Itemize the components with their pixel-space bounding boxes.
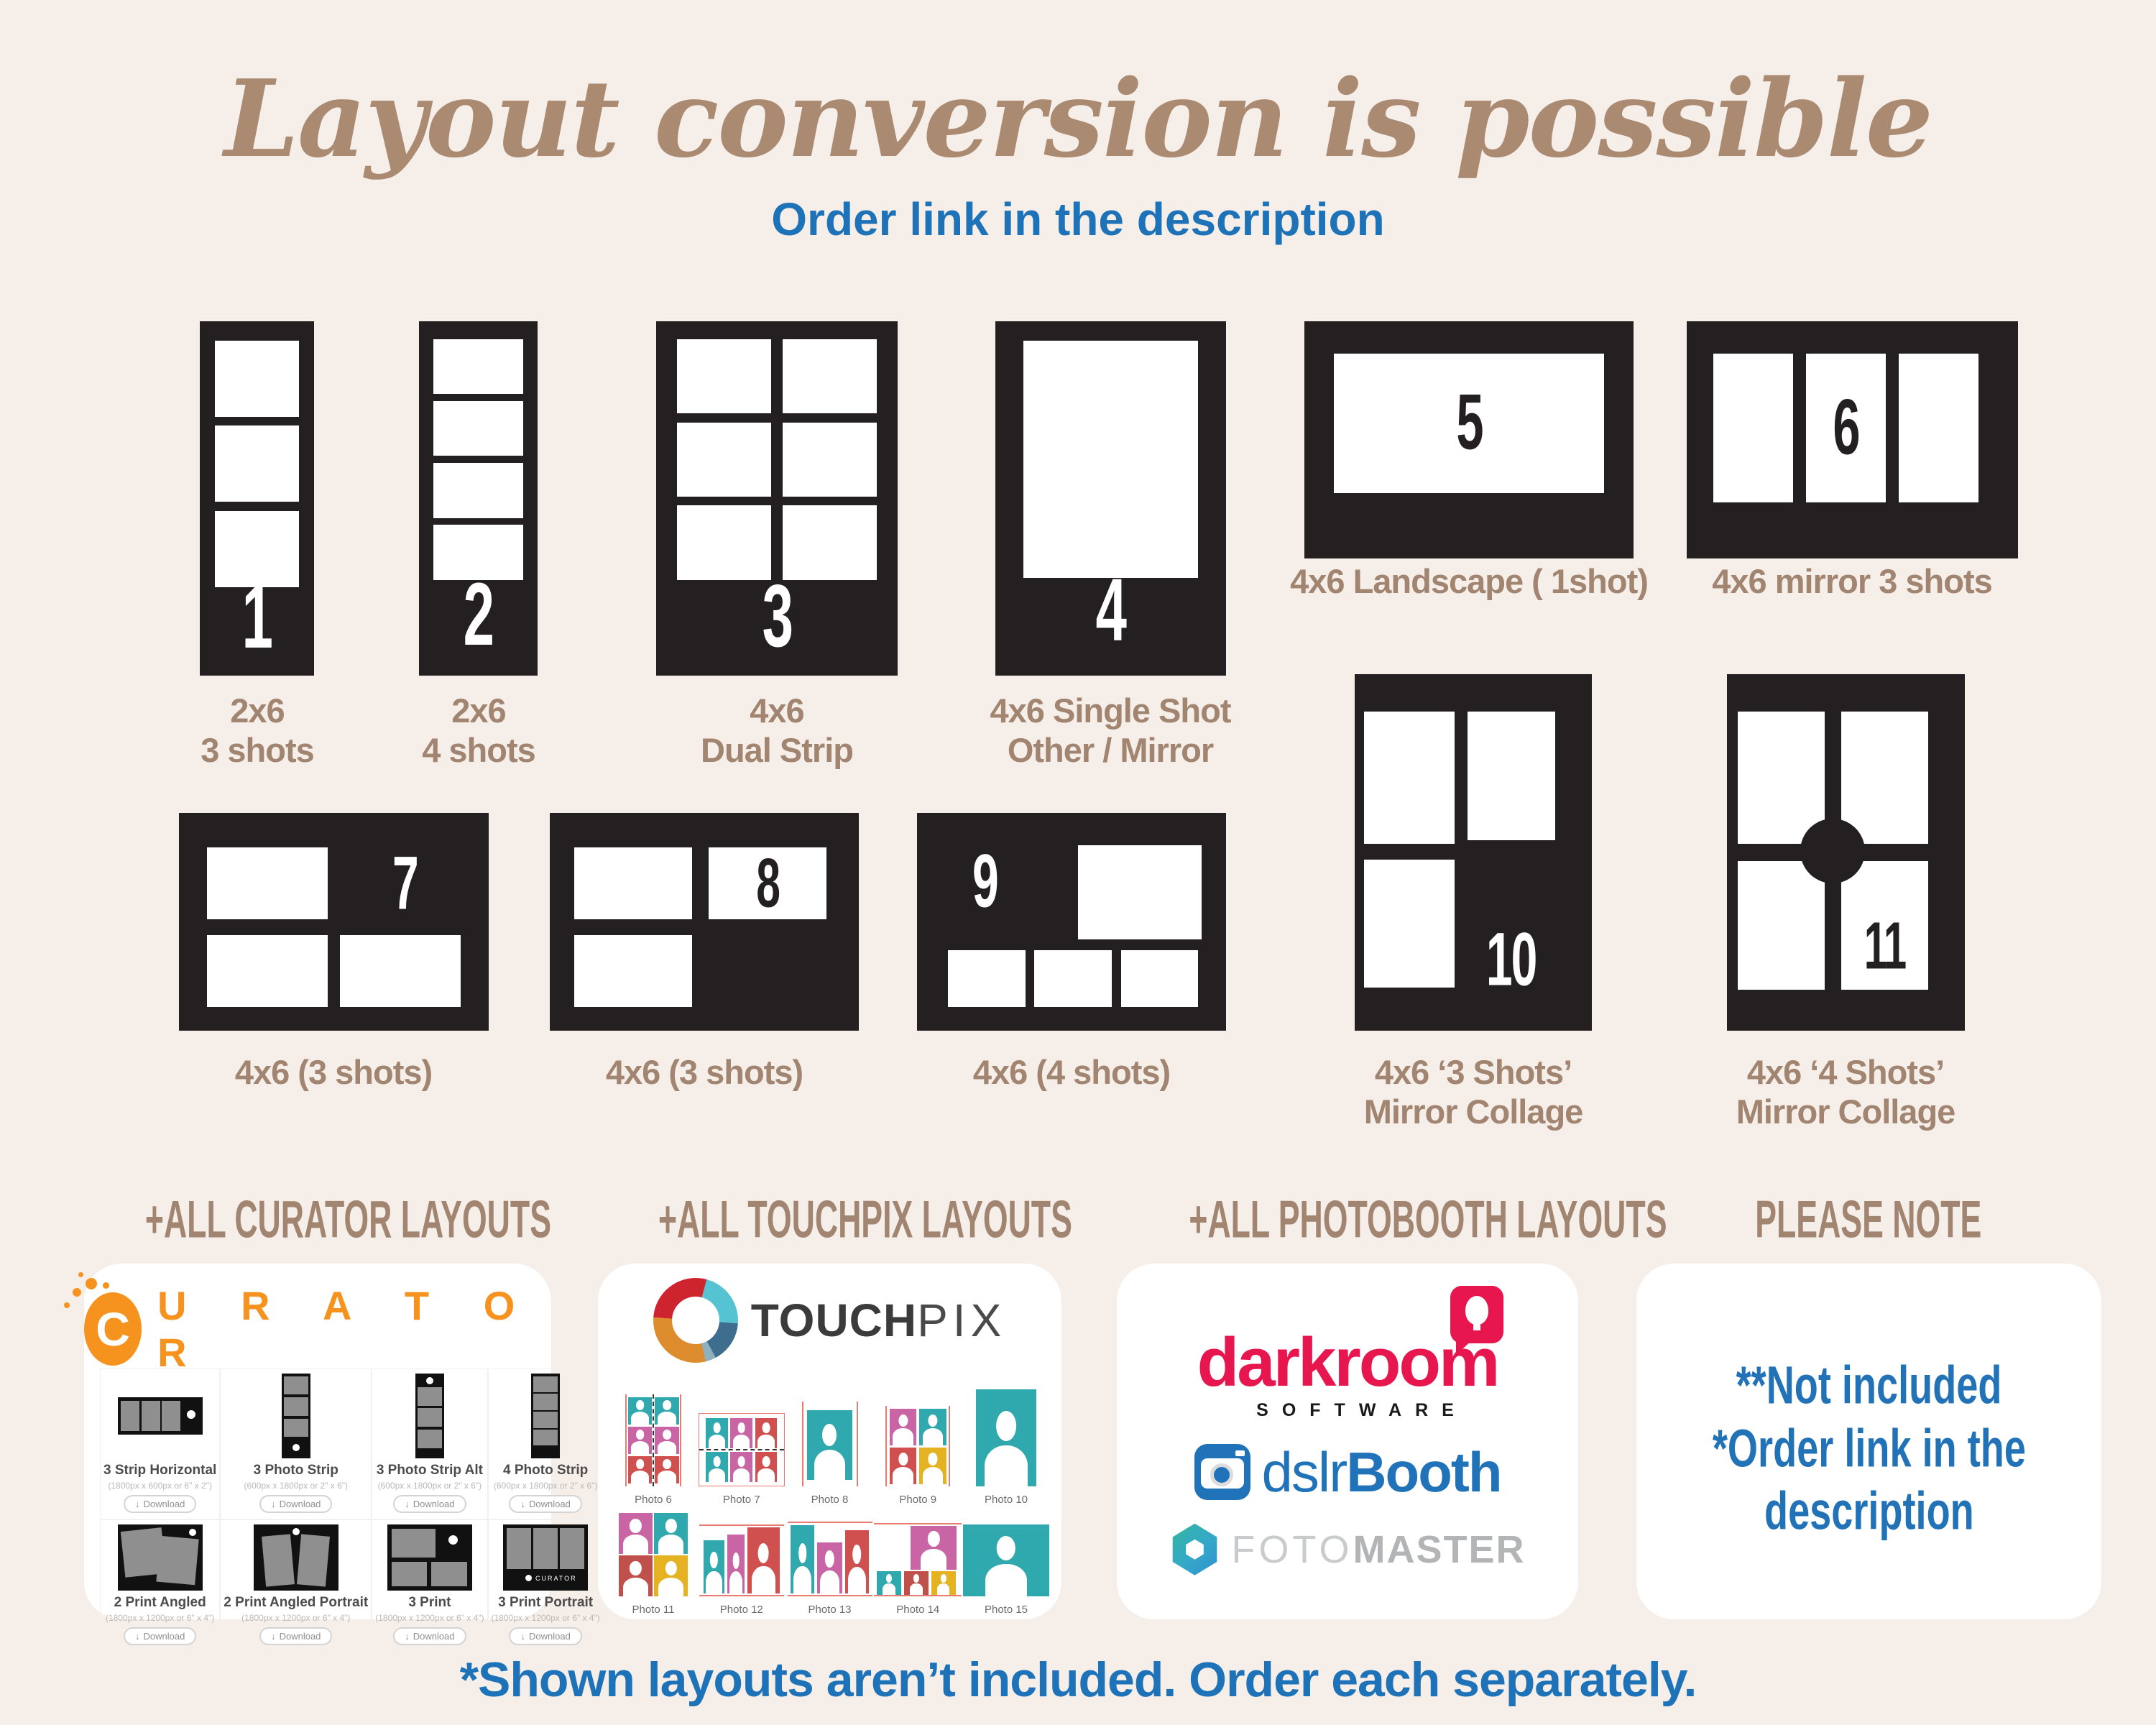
touchpix-item: Photo 11 <box>611 1512 696 1616</box>
touchpix-thumb <box>976 1389 1036 1486</box>
layout-number: 10 <box>1486 922 1536 998</box>
layout-number: 4 <box>1096 566 1125 655</box>
layout-number: 3 <box>762 571 791 661</box>
download-icon: ↓ <box>520 1499 525 1509</box>
touchpix-item: Photo 12 <box>699 1512 784 1616</box>
curator-item: 3 Print (1800px x 1200px or 6" x 4") ↓Do… <box>372 1519 487 1652</box>
curator-item: 4 Photo Strip (600px x 1800px or 2" x 6"… <box>488 1368 604 1519</box>
layout-card-11: 11 <box>1727 674 1965 1031</box>
layout-card-1: 1 <box>200 321 314 676</box>
photo-slot <box>574 935 691 1007</box>
fotomaster-logo: FOTOMASTER <box>1169 1524 1525 1575</box>
photo-slot <box>215 341 300 417</box>
touchpix-item: Photo 7 <box>699 1384 784 1506</box>
layout-label-7: 4x6 (3 shots) <box>154 1053 513 1092</box>
download-button[interactable]: ↓Download <box>509 1495 581 1513</box>
touchpix-item: Photo 9 <box>875 1384 960 1506</box>
poster: Layout conversion is possible Order link… <box>0 0 2156 1725</box>
download-button[interactable]: ↓Download <box>393 1627 466 1645</box>
layout-number: 9 <box>972 844 998 919</box>
touchpix-item: Photo 13 <box>788 1512 872 1616</box>
layout-label-4: 4x6 Single ShotOther / Mirror <box>931 691 1290 770</box>
layout-label-6: 4x6 mirror 3 shots <box>1636 562 2068 602</box>
layout-card-5: 5 <box>1304 321 1634 558</box>
touchpix-ring-icon <box>653 1278 738 1363</box>
photo-slot <box>433 339 523 394</box>
photo-slot: 8 <box>709 847 826 919</box>
layout-card-6: 6 <box>1687 321 2018 558</box>
touchpix-thumb <box>963 1524 1049 1596</box>
curator-thumb <box>387 1524 472 1591</box>
photo-slot: 6 <box>1806 354 1886 503</box>
curator-thumb: CURATOR <box>503 1524 588 1591</box>
layout-label-5: 4x6 Landscape ( 1shot) <box>1253 562 1685 602</box>
camera-icon <box>1194 1444 1250 1500</box>
layout-card-8: 8 <box>550 813 859 1031</box>
download-icon: ↓ <box>135 1631 140 1642</box>
photo-slot <box>340 935 461 1007</box>
download-button[interactable]: ↓Download <box>259 1627 332 1645</box>
touchpix-thumb <box>788 1522 872 1596</box>
touchpix-thumb <box>625 1394 681 1486</box>
photo-slot <box>1738 712 1825 844</box>
photo-slot <box>207 847 328 919</box>
download-button[interactable]: ↓Download <box>259 1495 332 1513</box>
download-button[interactable]: ↓Download <box>393 1495 466 1513</box>
touchpix-thumb <box>885 1406 950 1486</box>
photo-slot <box>1841 712 1928 844</box>
curator-item: CURATOR 3 Print Portrait (1800px x 1200p… <box>488 1519 604 1652</box>
touchpix-item: Photo 10 <box>964 1384 1049 1506</box>
photo-slot <box>574 847 691 919</box>
layout-card-4: 4 <box>995 321 1226 676</box>
curator-thumb <box>118 1397 203 1435</box>
photobooth-panel: darkroom SOFTWARE dslrBooth FOTOMASTER <box>1117 1264 1578 1619</box>
touchpix-thumb <box>802 1402 858 1486</box>
aperture-icon <box>1169 1524 1220 1575</box>
darkroom-bubble-icon <box>1450 1286 1503 1343</box>
photo-slot <box>207 935 328 1007</box>
touchpix-thumb <box>699 1413 785 1486</box>
photo-slot <box>1364 860 1454 988</box>
curator-item: 3 Photo Strip Alt (600px x 1800px or 2" … <box>372 1368 487 1519</box>
photo-slot <box>1023 341 1199 578</box>
curator-thumb <box>531 1374 560 1458</box>
photo-slot <box>1034 950 1112 1007</box>
heading-photobooth: +ALL PHOTOBOOTH LAYOUTS <box>1096 1195 1599 1246</box>
photo-slot <box>783 423 877 497</box>
touchpix-thumb <box>619 1513 688 1596</box>
note-text: **Not included *Order link in the descri… <box>1636 1264 2101 1627</box>
curator-c-icon: C <box>84 1292 142 1366</box>
layout-number: 8 <box>756 844 779 923</box>
photo-slot <box>1899 354 1978 503</box>
photo-slot <box>1738 861 1825 990</box>
layout-card-10: 10 <box>1355 674 1592 1031</box>
layout-number: 6 <box>1833 383 1858 473</box>
touchpix-item: Photo 6 <box>611 1384 696 1506</box>
curator-thumb <box>118 1524 203 1591</box>
curator-layout-grid: 3 Strip Horizontal (1800px x 600px or 6"… <box>100 1368 535 1609</box>
download-icon: ↓ <box>520 1631 525 1642</box>
darkroom-logo: darkroom SOFTWARE <box>1197 1307 1498 1420</box>
curator-item: 2 Print Angled Portrait (1800px x 1200px… <box>220 1519 372 1652</box>
touchpix-item: Photo 15 <box>964 1512 1049 1616</box>
layout-label-8: 4x6 (3 shots) <box>525 1053 884 1092</box>
download-icon: ↓ <box>135 1499 140 1509</box>
layout-number: 1 <box>242 573 272 662</box>
layout-number: 11 <box>1864 907 1905 984</box>
layout-label-3: 4x6Dual Strip <box>597 691 957 770</box>
photo-slot <box>783 505 877 580</box>
layout-card-9: 9 <box>917 813 1226 1031</box>
photo-slot <box>948 950 1026 1007</box>
layout-card-2: 2 <box>419 321 538 676</box>
curator-thumb <box>415 1374 444 1458</box>
photo-slot <box>433 401 523 456</box>
curator-item: 3 Photo Strip (600px x 1800px or 2" x 6"… <box>220 1368 372 1519</box>
heading-curator: +ALL CURATOR LAYOUTS <box>66 1195 569 1246</box>
curator-logo: C U R A T O R <box>84 1282 551 1376</box>
photo-slot <box>1364 712 1454 844</box>
photo-slot: 5 <box>1334 354 1604 494</box>
photo-slot <box>1468 712 1555 840</box>
layout-label-11: 4x6 ‘4 Shots’Mirror Collage <box>1666 1053 2025 1131</box>
layout-number: 5 <box>1456 378 1482 468</box>
download-icon: ↓ <box>271 1499 276 1509</box>
curator-thumb <box>254 1524 338 1591</box>
touchpix-panel: TOUCHPIX Photo 6 <box>598 1264 1061 1619</box>
touchpix-thumb <box>874 1522 962 1596</box>
download-button[interactable]: ↓Download <box>124 1495 196 1513</box>
curator-thumb <box>282 1374 310 1458</box>
layout-number: 2 <box>464 570 493 659</box>
heading-touchpix: +ALL TOUCHPIX LAYOUTS <box>578 1195 1081 1246</box>
photo-slot <box>677 423 771 497</box>
layout-label-9: 4x6 (4 shots) <box>892 1053 1251 1092</box>
layout-number: 7 <box>392 846 418 921</box>
photo-slot <box>677 505 771 580</box>
download-icon: ↓ <box>271 1631 276 1642</box>
photo-slot <box>1121 950 1199 1007</box>
page-title: Layout conversion is possible <box>0 56 2156 181</box>
touchpix-item: Photo 8 <box>788 1384 872 1506</box>
layout-card-7: 7 <box>179 813 489 1031</box>
photo-slot <box>1078 845 1202 939</box>
page-subtitle: Order link in the description <box>0 193 2156 246</box>
photo-slot <box>1713 354 1793 503</box>
photo-slot: 11 <box>1841 861 1928 990</box>
touchpix-logo: TOUCHPIX <box>598 1278 1061 1363</box>
touchpix-item: Photo 14 <box>875 1512 960 1616</box>
note-panel: **Not included *Order link in the descri… <box>1636 1264 2101 1619</box>
download-button[interactable]: ↓Download <box>509 1627 581 1645</box>
curator-item: 3 Strip Horizontal (1800px x 600px or 6"… <box>100 1368 220 1519</box>
layout-card-3: 3 <box>656 321 898 676</box>
layout-label-10: 4x6 ‘3 Shots’Mirror Collage <box>1294 1053 1653 1131</box>
touchpix-thumb <box>699 1524 784 1596</box>
photo-slot <box>433 463 523 517</box>
curator-item: 2 Print Angled (1800px x 1200px or 6" x … <box>100 1519 220 1652</box>
download-icon: ↓ <box>405 1631 410 1642</box>
footnote: *Shown layouts aren’t included. Order ea… <box>0 1652 2156 1708</box>
center-dot <box>1800 819 1865 883</box>
curator-panel: C U R A T O R 3 Strip Horizontal (1800px <box>84 1264 551 1619</box>
curator-wordmark: U R A T O R <box>157 1282 551 1376</box>
photo-slot <box>783 339 877 414</box>
heading-note: PLEASE NOTE <box>1617 1195 2120 1246</box>
download-icon: ↓ <box>405 1499 410 1509</box>
photo-slot <box>215 425 300 502</box>
dslrbooth-logo: dslrBooth <box>1194 1440 1501 1505</box>
photo-slot <box>677 339 771 414</box>
download-button[interactable]: ↓Download <box>124 1627 196 1645</box>
